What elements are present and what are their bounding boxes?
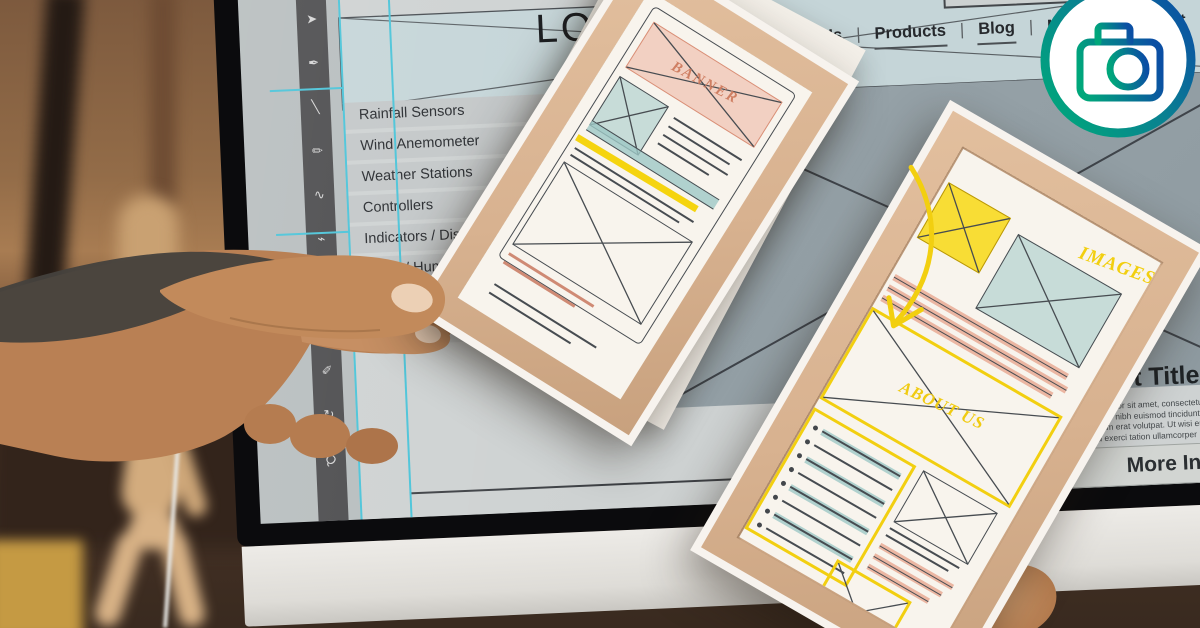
bullet-dot bbox=[780, 480, 787, 487]
nav-separator: | bbox=[856, 25, 861, 44]
bullet-dot bbox=[804, 438, 811, 445]
bullet-dot bbox=[796, 452, 803, 459]
pencil-tool-icon[interactable]: ✏ bbox=[302, 128, 334, 173]
camera-badge bbox=[1028, 0, 1200, 150]
bullet-dot bbox=[812, 424, 819, 431]
nav-separator: | bbox=[960, 21, 965, 40]
selection-tool-icon[interactable]: ➤ bbox=[296, 0, 328, 42]
line-tool-icon[interactable]: ╲ bbox=[300, 85, 332, 130]
mannequin-leg bbox=[91, 528, 146, 628]
thumb bbox=[150, 240, 480, 370]
curled-finger bbox=[290, 414, 350, 458]
wooden-block bbox=[0, 540, 83, 628]
badge-ring bbox=[1045, 0, 1191, 133]
curled-finger bbox=[346, 428, 398, 464]
curled-finger bbox=[244, 404, 296, 444]
nav-item-blog[interactable]: Blog bbox=[977, 19, 1017, 46]
nav-item-products[interactable]: Products bbox=[873, 22, 948, 50]
photo-stage: LOGO Products, Parts, Keywords... About … bbox=[0, 0, 1200, 628]
bullet-dot bbox=[788, 466, 795, 473]
bullet-dot bbox=[764, 507, 771, 514]
pen-tool-icon[interactable]: ✒ bbox=[298, 41, 330, 86]
bullet-dot bbox=[756, 521, 763, 528]
bullet-dot bbox=[772, 493, 779, 500]
